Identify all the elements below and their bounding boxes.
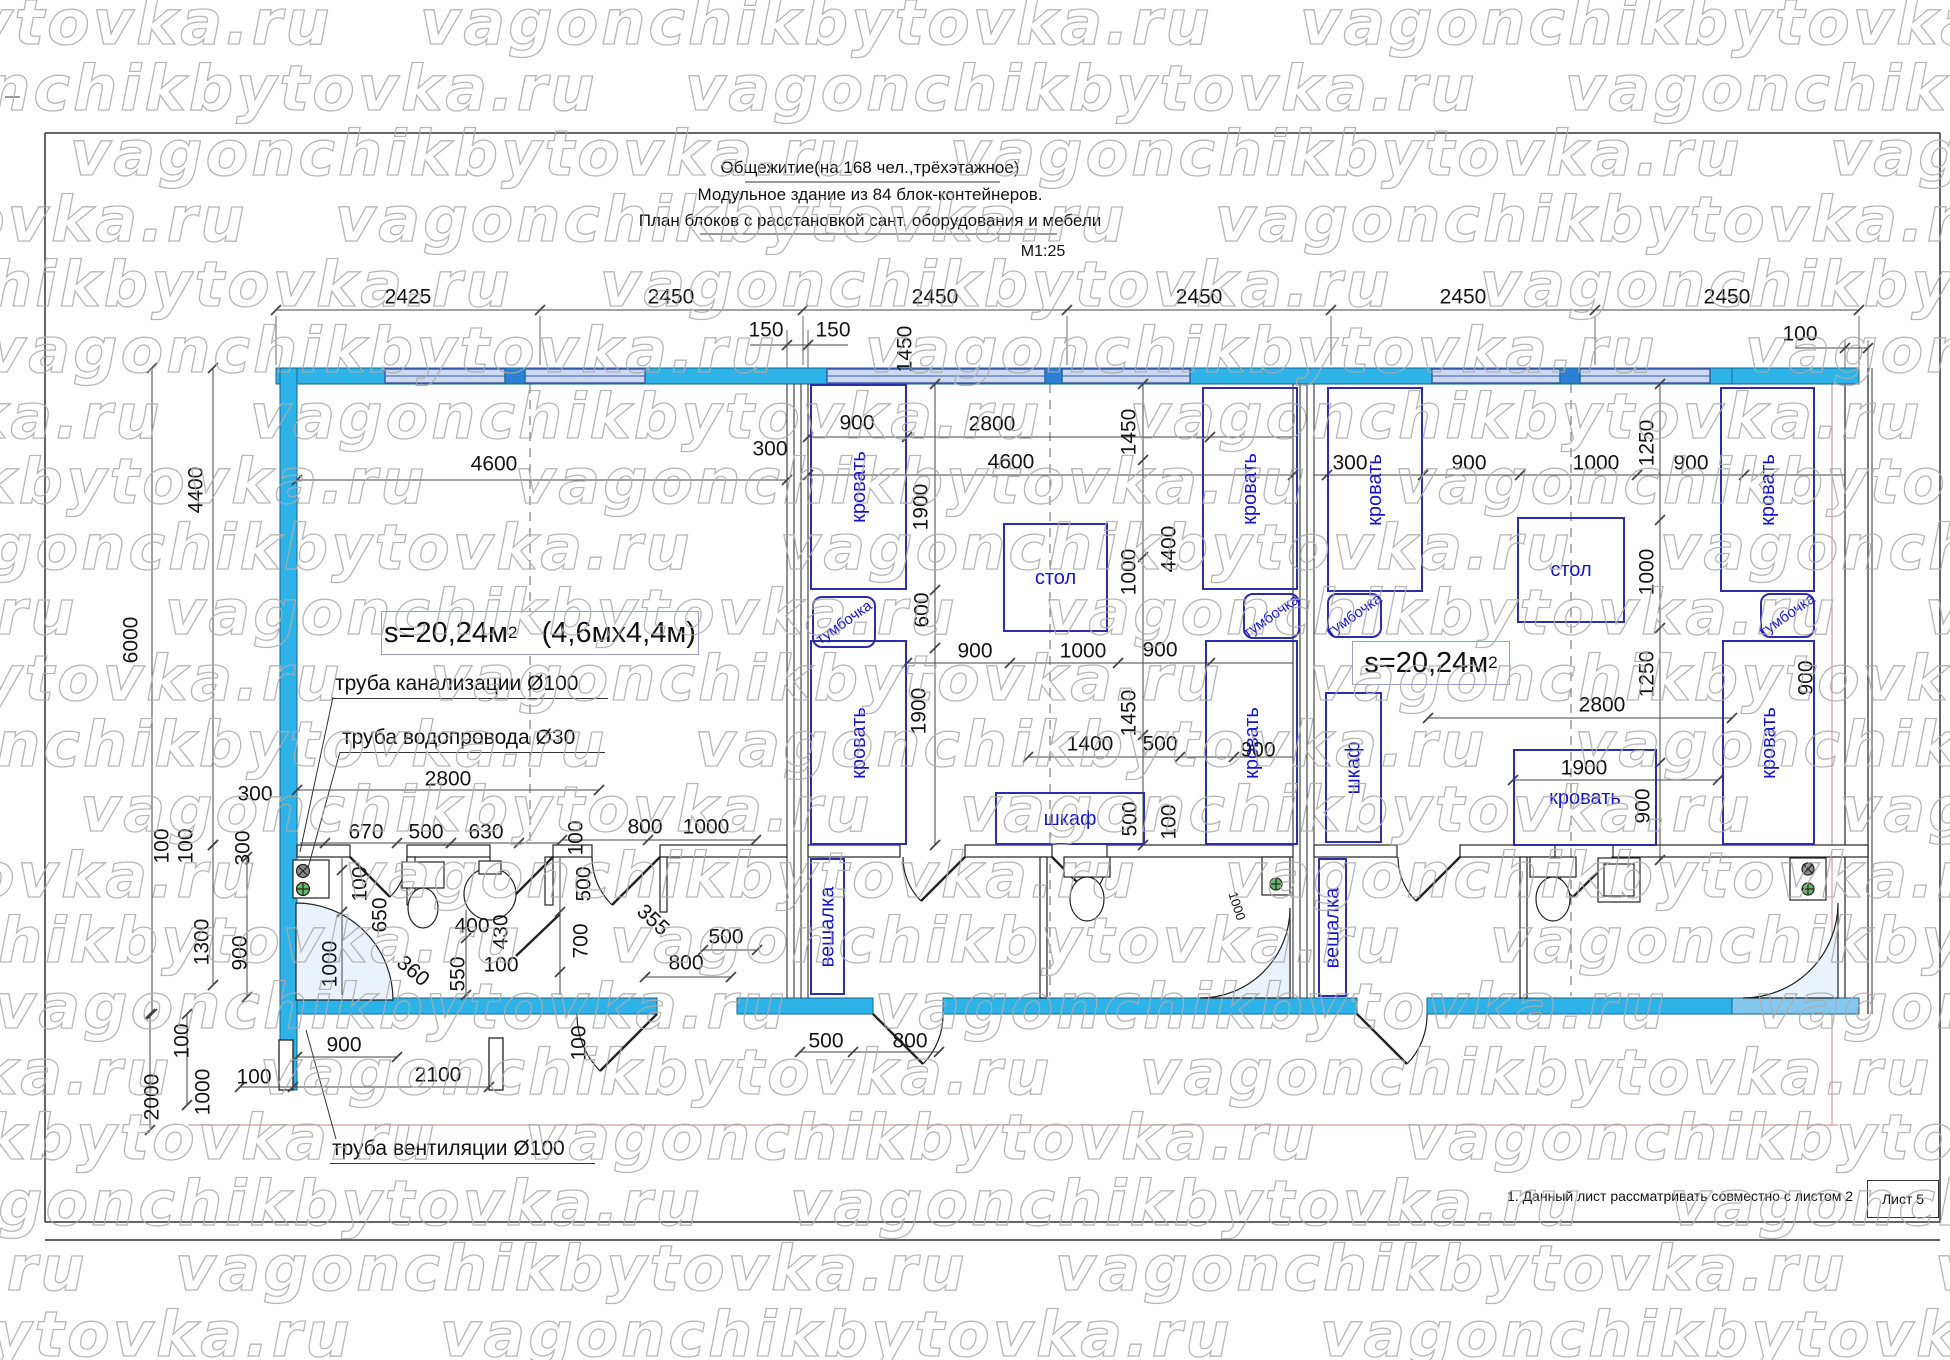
watermark: vagonchikbytovka.ru: [600, 248, 1393, 321]
watermark: vagonchikbytovka.ru: [960, 773, 1753, 846]
watermark: vagonchikbytovka.ru: [780, 511, 1573, 584]
watermark: vagonchikbytovka.ru: [0, 642, 343, 715]
watermark: vagonchikbytovka.ru: [1830, 117, 1950, 190]
watermark: vagonchikbytovka.ru: [1215, 183, 1950, 256]
watermark: vagonchikbytovka.ru: [0, 1167, 703, 1240]
watermark: vagonchikbytovka.ru: [1140, 1036, 1933, 1109]
watermark: vagonchikbytovka.ru: [335, 183, 1128, 256]
watermark: vagonchikbytovka.ru: [1320, 1298, 1950, 1360]
drawing-sheet: 2425245024502450245024501501501006000440…: [0, 0, 1950, 1360]
watermark: vagonchikbytovka.ru: [1395, 445, 1950, 518]
watermark: vagonchikbytovka.ru: [260, 1036, 1053, 1109]
watermark: vagonchikbytovka.ru: [420, 0, 1213, 59]
watermark: vagonchikbytovka.ru: [610, 904, 1403, 977]
watermark: vagonchikbytovka.ru: [1660, 511, 1950, 584]
watermark: vagonchikbytovka.ru: [0, 708, 608, 781]
watermark: vagonchikbytovka.ru: [1490, 904, 1950, 977]
watermark: vagonchikbytovka.ru: [440, 1298, 1233, 1360]
watermark: vagonchikbytovka.ru: [0, 1232, 88, 1305]
watermark: vagonchikbytovka.ru: [1055, 1232, 1848, 1305]
watermark: vagonchikbytovka.ru: [0, 380, 163, 453]
watermark: vagonchikbytovka.ru: [0, 248, 513, 321]
watermark: vagonchikbytovka.ru: [1745, 314, 1950, 387]
watermark: vagonchikbytovka.ru: [685, 52, 1478, 125]
watermark: vagonchikbytovka.ru: [0, 183, 248, 256]
watermark: vagonchikbytovka.ru: [80, 773, 873, 846]
watermark: vagonchikbytovka.ru: [165, 576, 958, 649]
watermark-layer: vagonchikbytovka.ruvagonchikbytovka.ruva…: [0, 0, 1950, 1360]
watermark: vagonchikbytovka.ru: [0, 314, 778, 387]
watermark: vagonchikbytovka.ru: [430, 642, 1223, 715]
watermark: vagonchikbytovka.ru: [0, 1036, 173, 1109]
watermark: vagonchikbytovka.ru: [1755, 970, 1950, 1043]
watermark: vagonchikbytovka.ru: [1670, 1167, 1950, 1240]
watermark: vagonchikbytovka.ru: [515, 445, 1308, 518]
watermark: vagonchikbytovka.ru: [0, 904, 523, 977]
watermark: vagonchikbytovka.ru: [0, 576, 78, 649]
watermark: vagonchikbytovka.ru: [1045, 576, 1838, 649]
watermark: vagonchikbytovka.ru: [1575, 708, 1950, 781]
watermark: vagonchikbytovka.ru: [0, 839, 258, 912]
watermark: vagonchikbytovka.ru: [1925, 576, 1950, 649]
watermark: vagonchikbytovka.ru: [0, 970, 788, 1043]
watermark: vagonchikbytovka.ru: [1405, 1101, 1950, 1174]
watermark: vagonchikbytovka.ru: [1310, 642, 1950, 715]
watermark: vagonchikbytovka.ru: [1840, 773, 1950, 846]
watermark: vagonchikbytovka.ru: [1300, 0, 1950, 59]
watermark: vagonchikbytovka.ru: [790, 1167, 1583, 1240]
watermark: vagonchikbytovka.ru: [345, 839, 1138, 912]
watermark: vagonchikbytovka.ru: [0, 52, 598, 125]
watermark: vagonchikbytovka.ru: [0, 445, 428, 518]
watermark: vagonchikbytovka.ru: [1225, 839, 1950, 912]
watermark: vagonchikbytovka.ru: [1935, 1232, 1950, 1305]
watermark: vagonchikbytovka.ru: [70, 117, 863, 190]
watermark: vagonchikbytovka.ru: [0, 1298, 353, 1360]
watermark: vagonchikbytovka.ru: [875, 970, 1668, 1043]
watermark: vagonchikbytovka.ru: [1565, 52, 1950, 125]
watermark: vagonchikbytovka.ru: [1480, 248, 1950, 321]
watermark: vagonchikbytovka.ru: [250, 380, 1043, 453]
watermark: vagonchikbytovka.ru: [695, 708, 1488, 781]
watermark: vagonchikbytovka.ru: [0, 1101, 438, 1174]
watermark: vagonchikbytovka.ru: [0, 511, 693, 584]
watermark: vagonchikbytovka.ru: [950, 117, 1743, 190]
watermark: vagonchikbytovka.ru: [865, 314, 1658, 387]
watermark: vagonchikbytovka.ru: [525, 1101, 1318, 1174]
watermark: vagonchikbytovka.ru: [175, 1232, 968, 1305]
watermark: vagonchikbytovka.ru: [1130, 380, 1923, 453]
watermark: vagonchikbytovka.ru: [0, 0, 333, 59]
